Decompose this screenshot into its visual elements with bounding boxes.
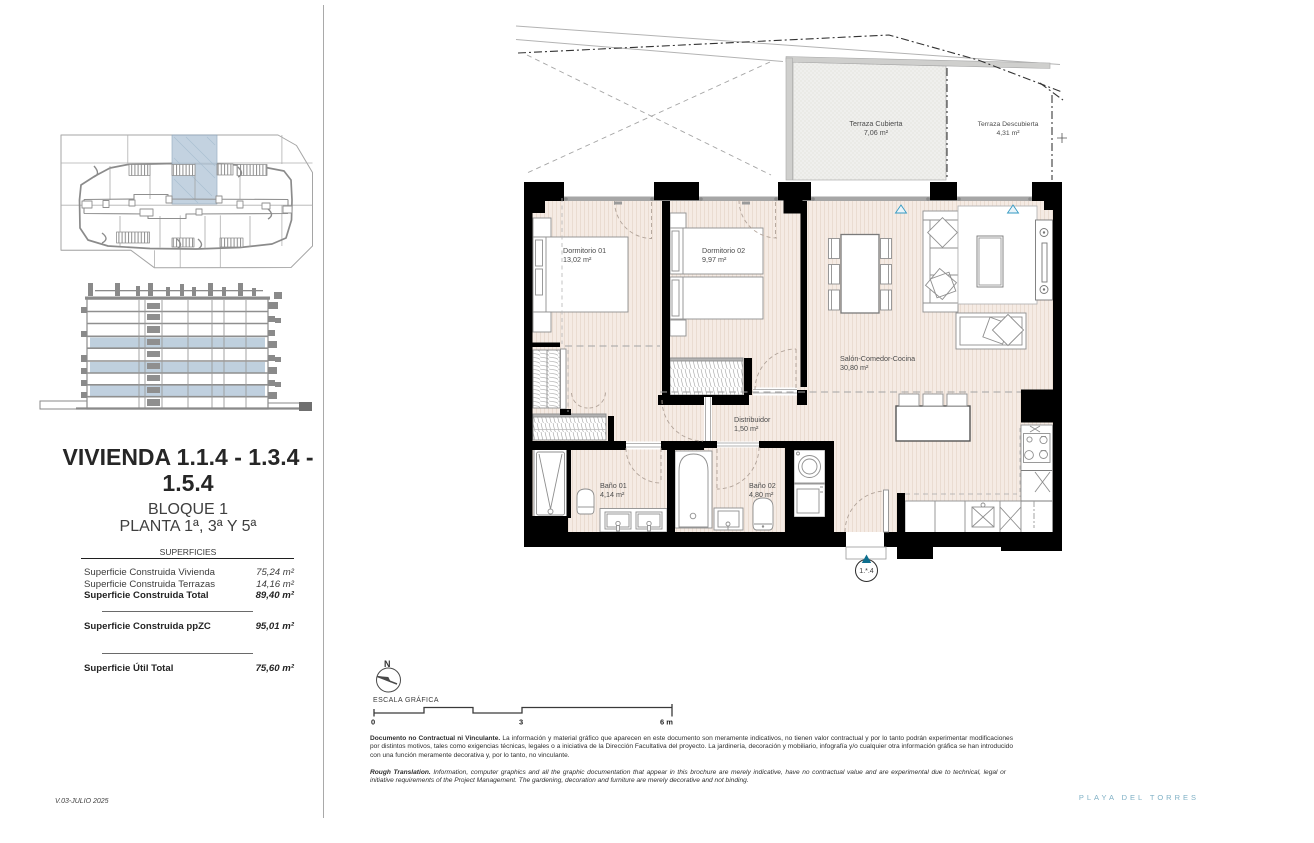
svg-text:6 m: 6 m: [660, 718, 673, 727]
svg-text:7,06 m²: 7,06 m²: [864, 128, 889, 137]
svg-text:Dormitorio 02: Dormitorio 02: [702, 246, 745, 255]
svg-text:Baño 02: Baño 02: [749, 481, 776, 490]
svg-text:0: 0: [371, 718, 375, 727]
svg-text:30,80 m²: 30,80 m²: [840, 363, 869, 372]
svg-text:1,50 m²: 1,50 m²: [734, 424, 759, 433]
svg-text:4,14 m²: 4,14 m²: [600, 490, 625, 499]
svg-text:9,97 m²: 9,97 m²: [702, 255, 727, 264]
svg-text:N: N: [384, 659, 391, 669]
svg-text:4,31 m²: 4,31 m²: [996, 130, 1020, 137]
svg-text:4,80 m²: 4,80 m²: [749, 490, 774, 499]
svg-text:Salón-Comedor-Cocina: Salón-Comedor-Cocina: [840, 354, 915, 363]
svg-text:Terraza Cubierta: Terraza Cubierta: [849, 119, 902, 128]
svg-text:Dormitorio 01: Dormitorio 01: [563, 246, 606, 255]
svg-text:13,02 m²: 13,02 m²: [563, 255, 592, 264]
svg-text:Baño 01: Baño 01: [600, 481, 627, 490]
svg-text:ESCALA GRÁFICA: ESCALA GRÁFICA: [373, 695, 439, 704]
svg-text:3: 3: [519, 718, 523, 727]
svg-text:Distribuidor: Distribuidor: [734, 415, 771, 424]
svg-text:1.*.4: 1.*.4: [859, 568, 874, 575]
svg-text:Terraza Descubierta: Terraza Descubierta: [978, 121, 1039, 128]
